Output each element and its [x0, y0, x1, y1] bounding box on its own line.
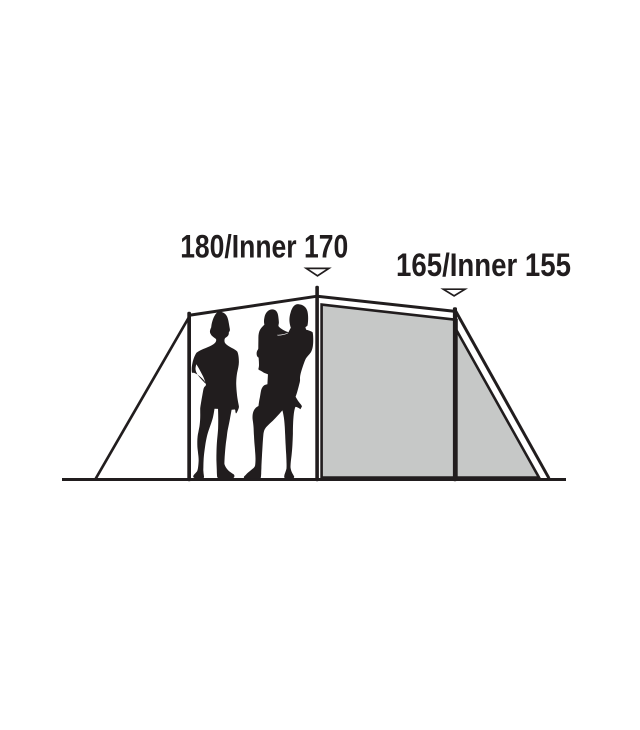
svg-text:165/Inner 155: 165/Inner 155	[396, 247, 571, 283]
svg-text:180/Inner 170: 180/Inner 170	[180, 228, 348, 264]
